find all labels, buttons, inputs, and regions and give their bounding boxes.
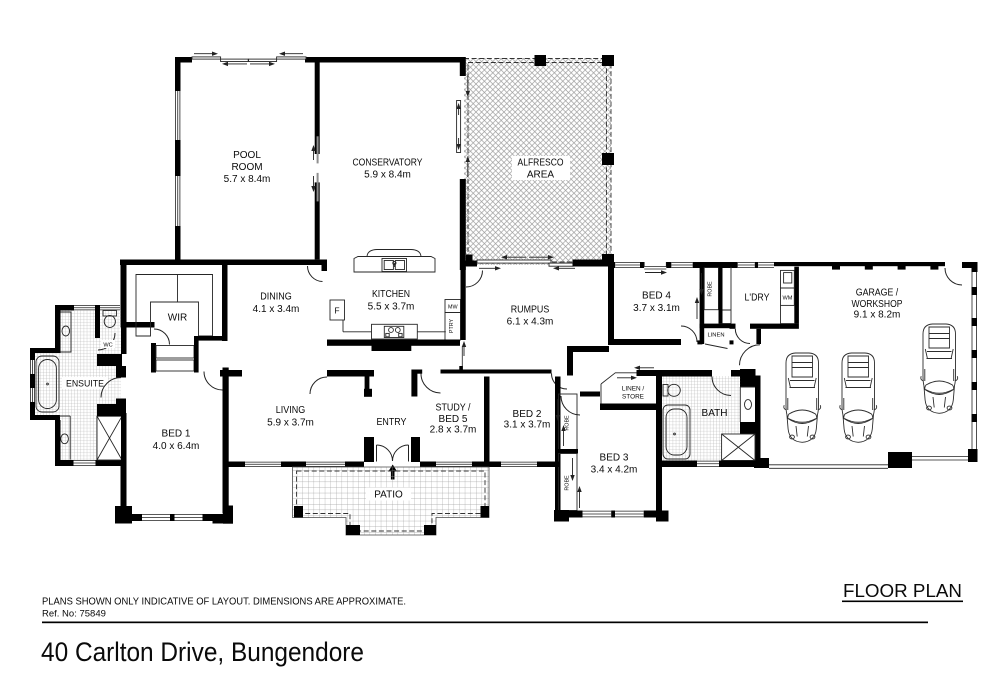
svg-text:POOL: POOL bbox=[233, 150, 261, 161]
svg-text:40 Carlton Drive, Bungendore: 40 Carlton Drive, Bungendore bbox=[41, 637, 364, 667]
svg-text:LINEN: LINEN bbox=[707, 333, 724, 339]
svg-text:4.1 x 3.4m: 4.1 x 3.4m bbox=[253, 304, 300, 315]
svg-text:BED 5: BED 5 bbox=[439, 414, 468, 425]
svg-text:AREA: AREA bbox=[527, 170, 555, 181]
svg-text:3.1 x 3.7m: 3.1 x 3.7m bbox=[504, 420, 551, 431]
svg-text:STUDY /: STUDY / bbox=[436, 403, 471, 414]
svg-text:BED 2: BED 2 bbox=[513, 409, 542, 420]
svg-text:PATIO: PATIO bbox=[374, 490, 403, 501]
svg-text:BED 3: BED 3 bbox=[600, 453, 629, 464]
svg-text:KITCHEN: KITCHEN bbox=[372, 289, 410, 300]
svg-text:PLANS SHOWN ONLY INDICATIVE OF: PLANS SHOWN ONLY INDICATIVE OF LAYOUT. D… bbox=[42, 597, 406, 608]
svg-text:STORE: STORE bbox=[622, 394, 644, 401]
svg-text:RUMPUS: RUMPUS bbox=[511, 305, 550, 316]
svg-text:5.7 x 8.4m: 5.7 x 8.4m bbox=[224, 174, 271, 185]
svg-text:DINING: DINING bbox=[260, 292, 292, 303]
svg-text:F: F bbox=[334, 306, 339, 316]
svg-text:4.0 x 6.4m: 4.0 x 6.4m bbox=[153, 441, 200, 452]
svg-text:ALFRESCO: ALFRESCO bbox=[518, 158, 564, 169]
svg-text:2.8 x 3.7m: 2.8 x 3.7m bbox=[430, 425, 477, 436]
svg-text:5.9 x 8.4m: 5.9 x 8.4m bbox=[364, 170, 411, 181]
svg-text:PTRY: PTRY bbox=[449, 318, 455, 333]
svg-text:ROBE: ROBE bbox=[708, 281, 714, 297]
svg-text:LIVING: LIVING bbox=[276, 405, 306, 416]
svg-text:WORKSHOP: WORKSHOP bbox=[852, 299, 903, 310]
svg-text:ENTRY: ENTRY bbox=[377, 417, 407, 428]
svg-text:Ref. No: 75849: Ref. No: 75849 bbox=[42, 609, 106, 620]
svg-text:ENSUITE: ENSUITE bbox=[66, 378, 104, 389]
svg-text:CONSERVATORY: CONSERVATORY bbox=[353, 158, 423, 169]
svg-text:WIR: WIR bbox=[168, 313, 187, 324]
svg-text:GARAGE /: GARAGE / bbox=[856, 288, 899, 299]
svg-text:5.9 x 3.7m: 5.9 x 3.7m bbox=[267, 418, 314, 429]
svg-text:3.4 x 4.2m: 3.4 x 4.2m bbox=[591, 465, 638, 476]
svg-text:6.1 x 4.3m: 6.1 x 4.3m bbox=[507, 317, 554, 328]
svg-text:3.7 x 3.1m: 3.7 x 3.1m bbox=[633, 303, 680, 314]
svg-text:5.5 x 3.7m: 5.5 x 3.7m bbox=[368, 302, 415, 313]
svg-text:LINEN /: LINEN / bbox=[622, 386, 645, 393]
svg-text:WM: WM bbox=[783, 296, 793, 302]
svg-text:ROBE: ROBE bbox=[565, 415, 571, 431]
svg-text:FLOOR PLAN: FLOOR PLAN bbox=[843, 580, 962, 601]
svg-text:WC: WC bbox=[103, 343, 112, 349]
svg-text:ROBE: ROBE bbox=[565, 475, 571, 491]
svg-text:L'DRY: L'DRY bbox=[745, 293, 770, 304]
svg-text:9.1 x 8.2m: 9.1 x 8.2m bbox=[854, 310, 901, 321]
svg-text:BED 4: BED 4 bbox=[642, 291, 671, 302]
svg-text:MW: MW bbox=[448, 305, 458, 311]
svg-text:BATH: BATH bbox=[702, 408, 728, 419]
svg-text:BED 1: BED 1 bbox=[162, 429, 191, 440]
svg-text:ROOM: ROOM bbox=[231, 162, 262, 173]
